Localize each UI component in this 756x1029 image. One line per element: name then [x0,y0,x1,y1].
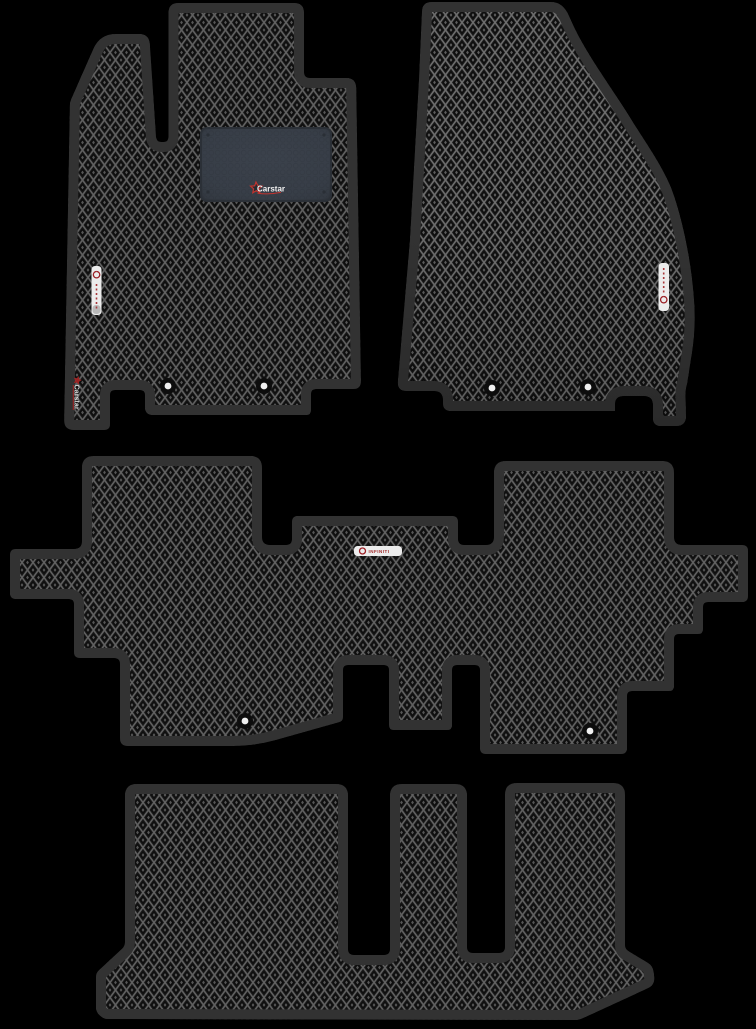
svg-text:INFINITI: INFINITI [369,549,390,554]
